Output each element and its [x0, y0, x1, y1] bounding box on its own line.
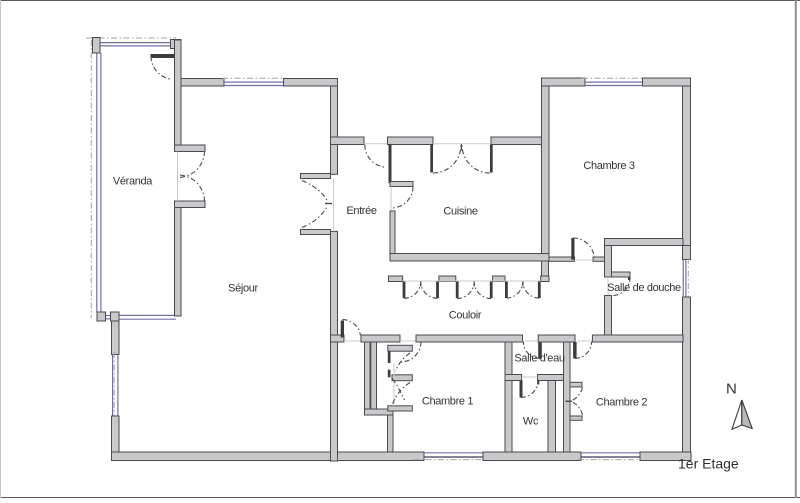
- svg-text:Chambre 1: Chambre 1: [422, 396, 473, 408]
- svg-text:Salle de douche: Salle de douche: [607, 282, 681, 294]
- svg-text:Chambre 3: Chambre 3: [583, 160, 634, 172]
- svg-text:Véranda: Véranda: [113, 176, 153, 188]
- svg-text:Salle d'eau: Salle d'eau: [514, 353, 564, 365]
- svg-text:Wc: Wc: [523, 416, 539, 428]
- svg-text:N: N: [726, 381, 736, 398]
- svg-text:1er Etage: 1er Etage: [678, 456, 739, 472]
- svg-text:Entrée: Entrée: [346, 205, 377, 217]
- svg-text:Séjour: Séjour: [228, 283, 258, 295]
- svg-text:Couloir: Couloir: [449, 309, 482, 321]
- svg-text:Chambre 2: Chambre 2: [596, 397, 647, 409]
- svg-text:Cuisine: Cuisine: [443, 206, 477, 218]
